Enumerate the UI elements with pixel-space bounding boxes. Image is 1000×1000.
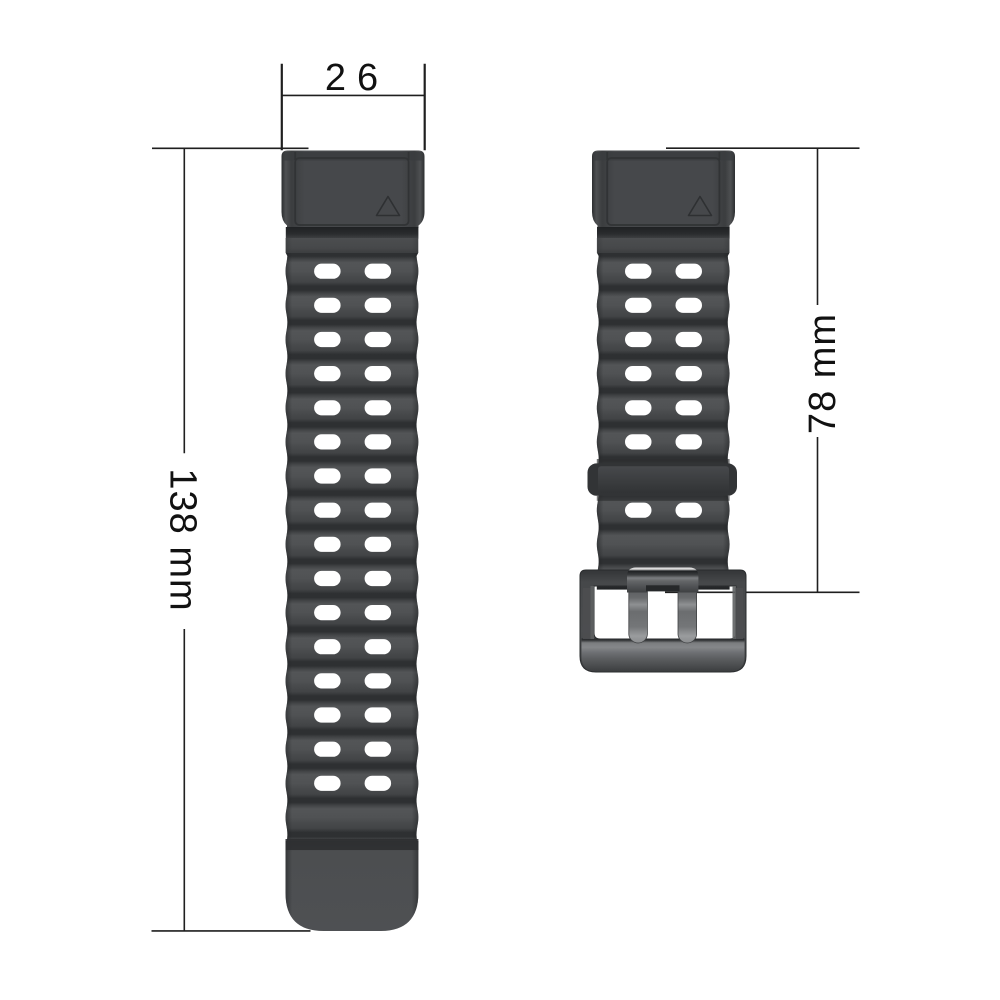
svg-text:78 mm: 78 mm xyxy=(802,313,844,434)
svg-text:138 mm: 138 mm xyxy=(162,468,204,611)
svg-text:26: 26 xyxy=(325,57,389,99)
